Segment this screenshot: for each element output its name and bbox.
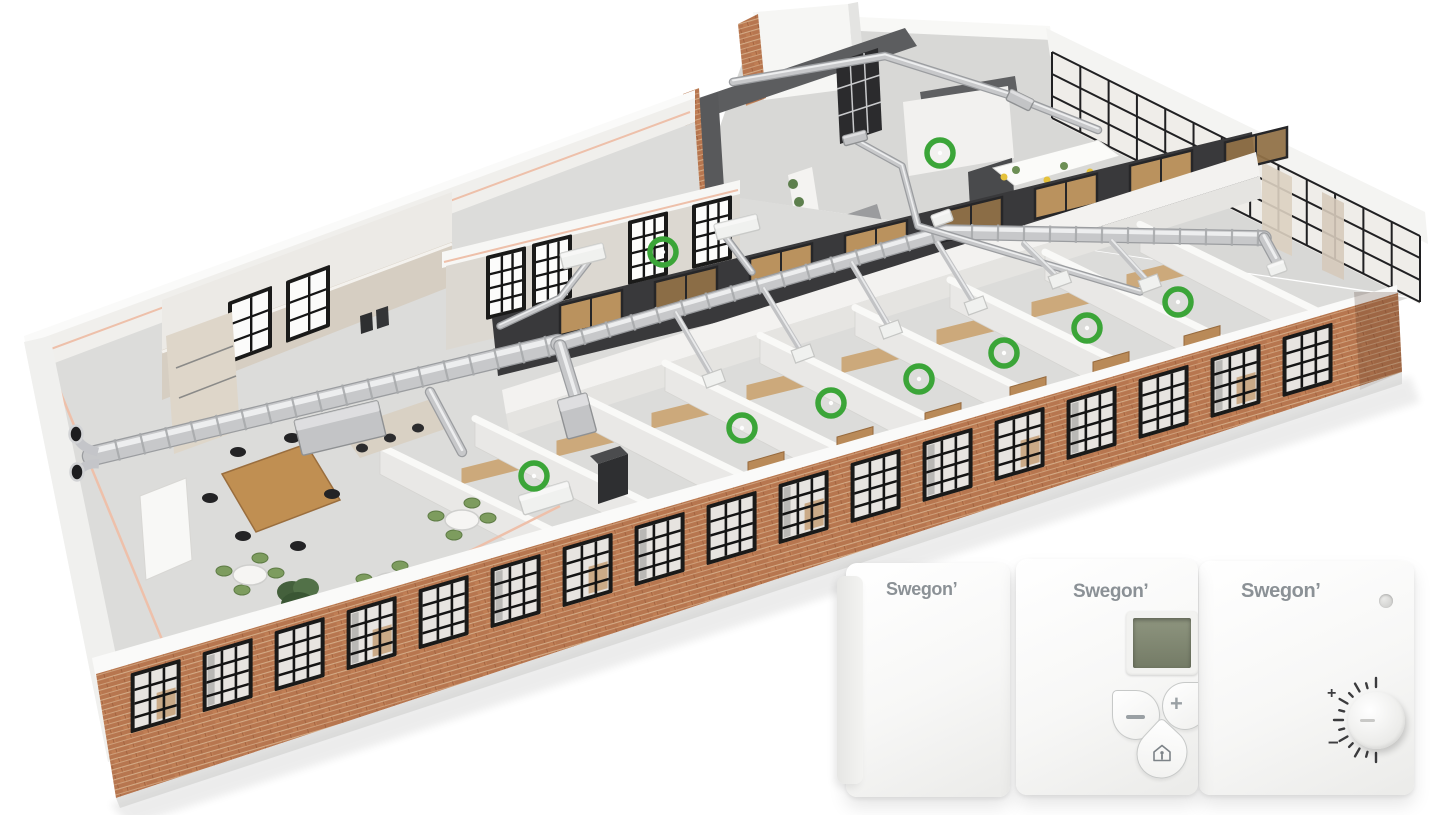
swegon-logo: Swegon’	[1241, 580, 1320, 603]
intake-opening	[70, 426, 83, 443]
lcd-display	[1126, 611, 1198, 675]
dial-plus-label: +	[1327, 685, 1336, 703]
swegon-logo: Swegon’	[886, 579, 957, 600]
controller-side-flap	[837, 576, 863, 784]
lcd-screen	[1133, 618, 1191, 668]
swegon-ventilation-illustration: Swegon’ Swegon’ + Swegon’ + –	[0, 0, 1430, 815]
dial-minus-label: –	[1328, 732, 1339, 754]
swegon-controller-basic: Swegon’	[846, 563, 1010, 797]
curtain-drape	[1322, 192, 1344, 280]
home-person-icon	[1151, 742, 1173, 764]
swegon-controller-display: Swegon’ +	[1016, 559, 1198, 795]
swegon-controller-dial: Swegon’ + –	[1199, 561, 1414, 795]
sensor-dot	[1379, 594, 1393, 608]
knob-mark	[1360, 719, 1375, 722]
temperature-knob	[1348, 692, 1405, 749]
intake-opening	[71, 464, 84, 481]
swegon-logo: Swegon’	[1073, 581, 1148, 603]
plus-icon: +	[1170, 691, 1183, 717]
minus-icon	[1126, 715, 1145, 719]
coffee-machine	[376, 306, 389, 329]
